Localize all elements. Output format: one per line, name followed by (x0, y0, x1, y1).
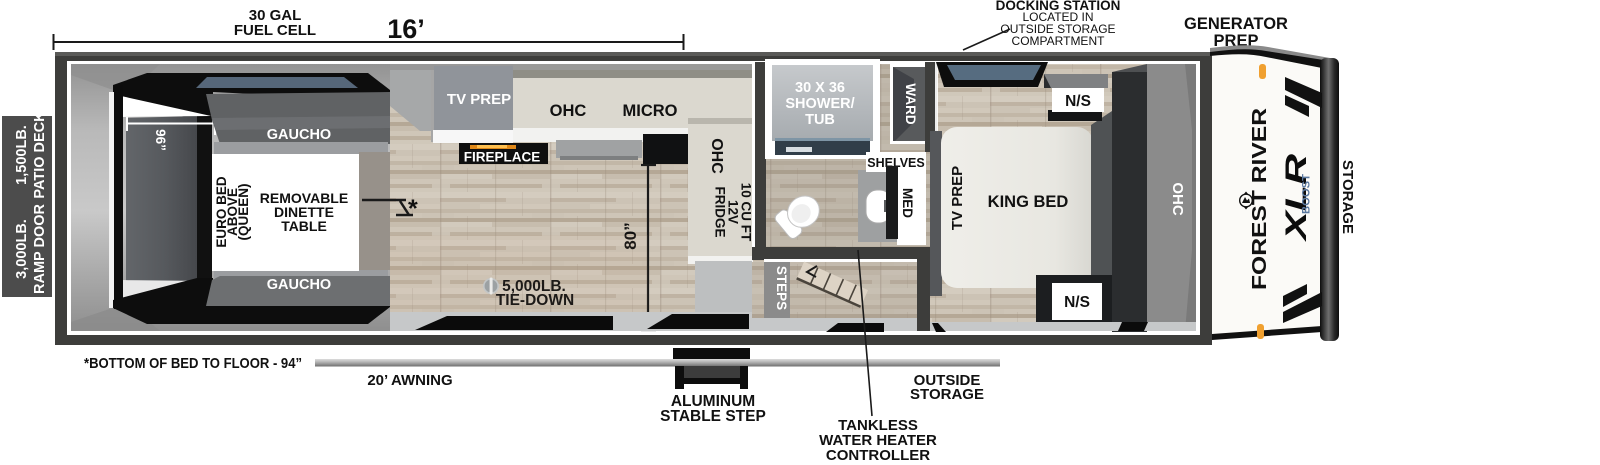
svg-text:OHC: OHC (550, 102, 587, 120)
svg-text:N/S: N/S (1064, 294, 1090, 311)
svg-text:WARD: WARD (903, 83, 918, 124)
svg-text:STEPS: STEPS (774, 266, 789, 310)
svg-text:30 X 36: 30 X 36 (795, 80, 845, 96)
svg-text:MED: MED (900, 188, 915, 218)
svg-text:KING BED: KING BED (988, 193, 1069, 211)
svg-text:FUEL CELL: FUEL CELL (234, 22, 316, 39)
svg-text:RAMP DOOR: RAMP DOOR (32, 203, 48, 293)
svg-text:BOOST: BOOST (1301, 174, 1313, 214)
svg-text:PATIO DECK: PATIO DECK (32, 111, 48, 199)
svg-text:16’: 16’ (387, 14, 425, 44)
svg-text:SHOWER/: SHOWER/ (785, 96, 854, 112)
svg-text:OHC: OHC (1169, 182, 1186, 216)
svg-text:FRIDGE: FRIDGE (713, 186, 728, 237)
svg-text:TUB: TUB (805, 112, 835, 128)
svg-text:FIREPLACE: FIREPLACE (464, 150, 541, 165)
svg-text:STORAGE: STORAGE (1339, 160, 1356, 234)
svg-text:1,500LB.: 1,500LB. (14, 125, 30, 185)
svg-text:3,000LB.: 3,000LB. (14, 219, 30, 279)
svg-text:96”: 96” (153, 129, 168, 151)
svg-text:TV PREP: TV PREP (949, 166, 966, 230)
svg-text:STABLE STEP: STABLE STEP (660, 408, 766, 425)
svg-text:*: * (408, 195, 418, 223)
svg-text:TABLE: TABLE (281, 218, 327, 234)
svg-text:MICRO: MICRO (623, 102, 678, 120)
svg-text:20’ AWNING: 20’ AWNING (367, 372, 452, 389)
svg-text:*BOTTOM OF BED TO FLOOR - 94”: *BOTTOM OF BED TO FLOOR - 94” (84, 355, 302, 372)
svg-text:(QUEEN): (QUEEN) (236, 184, 251, 241)
svg-text:GAUCHO: GAUCHO (267, 277, 331, 293)
svg-text:N/S: N/S (1065, 93, 1091, 110)
svg-text:TV PREP: TV PREP (447, 91, 511, 108)
svg-text:COMPARTMENT: COMPARTMENT (1012, 34, 1106, 48)
svg-text:STORAGE: STORAGE (910, 386, 984, 403)
svg-text:GAUCHO: GAUCHO (267, 127, 331, 143)
svg-text:CONTROLLER: CONTROLLER (826, 447, 930, 464)
svg-text:GENERATOR: GENERATOR (1184, 15, 1288, 33)
svg-text:OHC: OHC (708, 138, 725, 174)
